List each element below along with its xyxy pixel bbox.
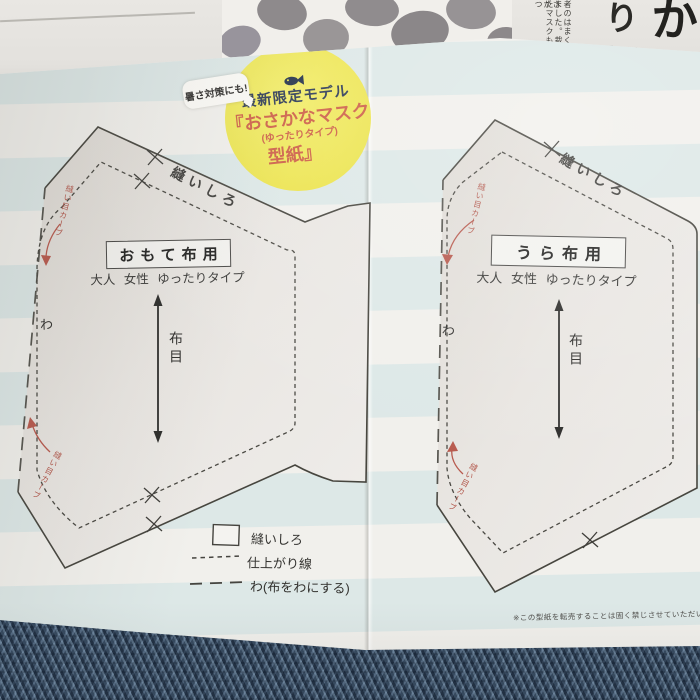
back-piece-grain-label: 布目	[566, 333, 586, 393]
front-piece-fold-label: わ	[40, 314, 54, 334]
legend-swatch-long-dash	[190, 582, 246, 584]
pattern-sheet: 最新限定モデル 『おさかなマスク (ゆったりタイプ) 型紙』 暑さ対策にも! お…	[0, 0, 700, 700]
back-piece-title-box: うら布用	[491, 235, 627, 269]
limited-model-badge: 最新限定モデル 『おさかなマスク (ゆったりタイプ) 型紙』	[225, 45, 371, 191]
legend-item-finished-line: 仕上がり線	[247, 552, 312, 572]
fish-icon	[282, 73, 305, 88]
legend-item-fold: わ(布をわにする)	[250, 576, 350, 597]
front-piece-grain-label: 布目	[166, 331, 186, 391]
front-piece-size-label: 大人 女性 ゆったりタイプ	[90, 267, 245, 289]
front-piece-title-box: おもて布用	[106, 239, 231, 269]
legend-swatch-seam-box	[213, 525, 240, 546]
back-piece-fold-label: わ	[441, 320, 455, 340]
legend-symbols	[190, 525, 246, 584]
photo-scene: かな り切 者のはまくまさ ました。裁縫が たマスクも、つ	[0, 0, 700, 700]
legend-item-seam-allowance: 縫いしろ	[251, 529, 303, 549]
magazine-crease-line	[0, 12, 195, 23]
legend-swatch-dashed	[192, 556, 242, 558]
